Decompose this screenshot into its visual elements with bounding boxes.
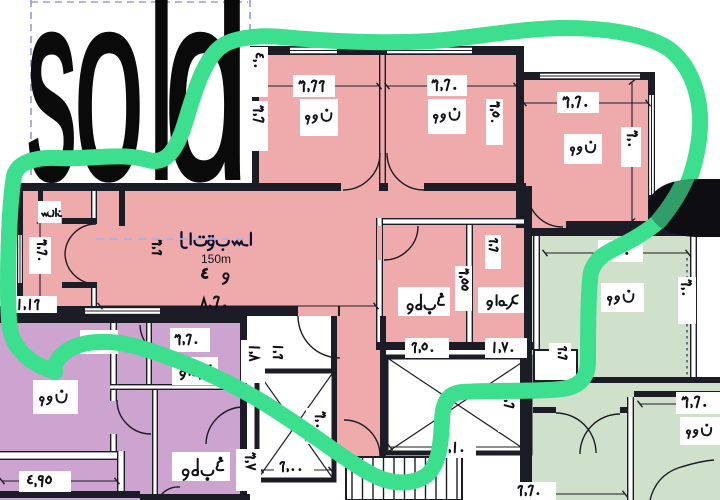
svg-text:o: o	[74, 0, 144, 236]
svg-text:150m: 150m	[201, 252, 231, 266]
svg-text:s: s	[27, 0, 77, 235]
